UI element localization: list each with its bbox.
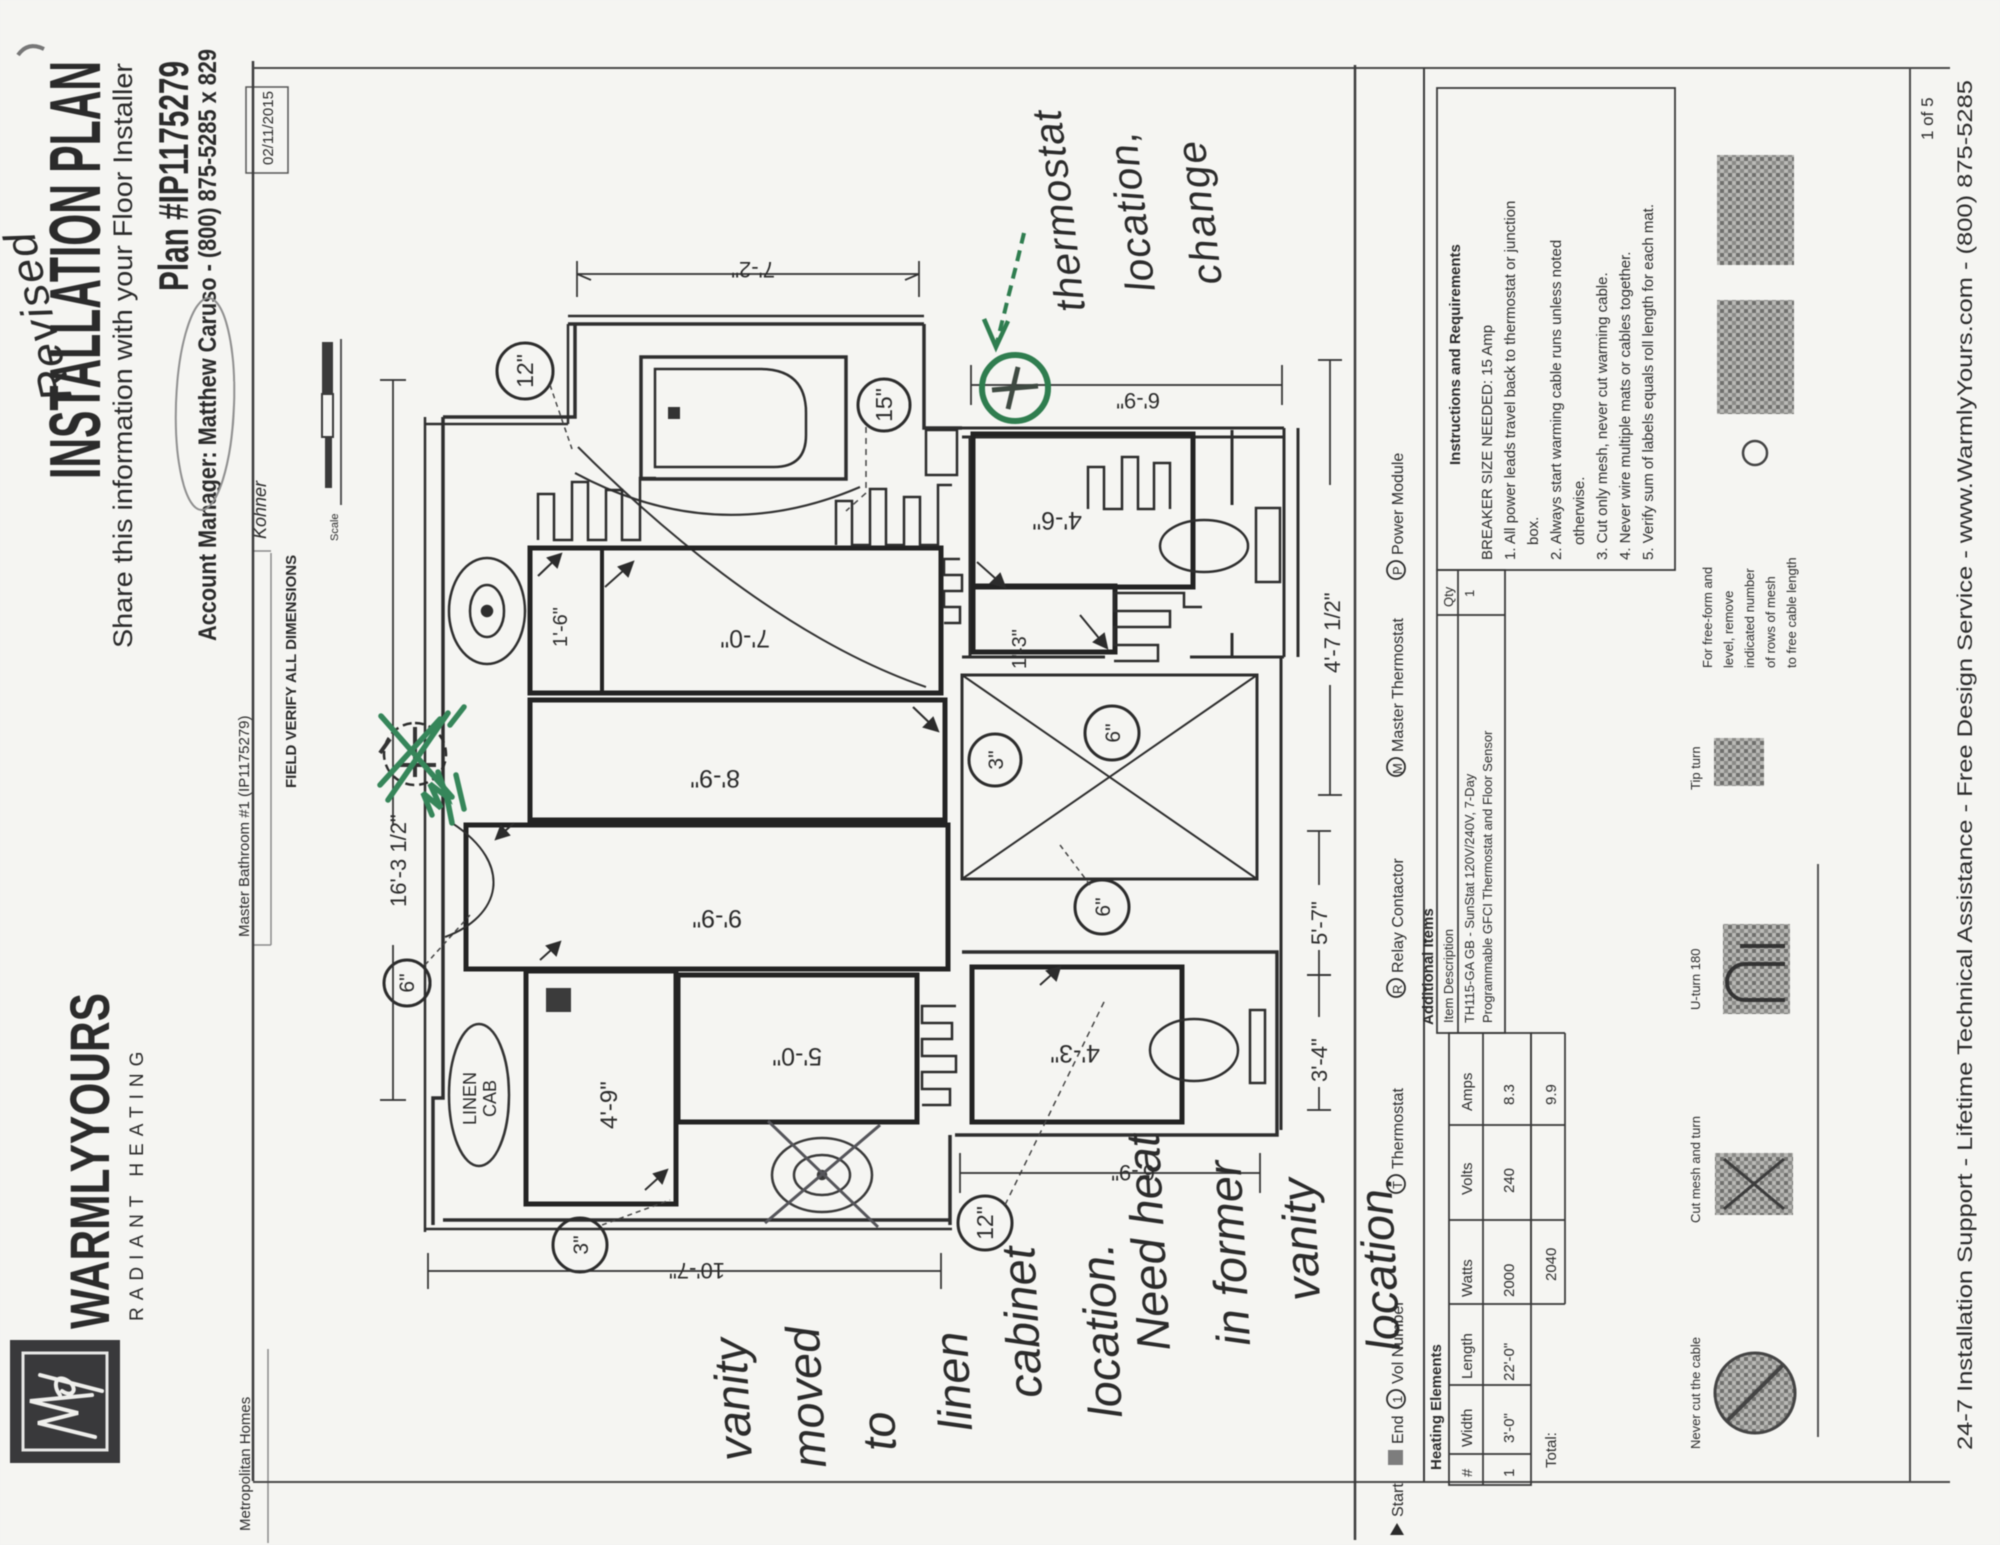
svg-text:vanity: vanity — [703, 1334, 762, 1462]
svg-text:6": 6" — [1092, 897, 1115, 916]
svg-text:7'-2": 7'-2" — [731, 257, 775, 282]
svg-text:9.9: 9.9 — [1543, 1084, 1560, 1105]
svg-text:3'-4": 3'-4" — [1307, 1038, 1332, 1082]
svg-text:to: to — [851, 1410, 906, 1452]
svg-text:Volts: Volts — [1459, 1162, 1476, 1195]
svg-text:Additional Items: Additional Items — [1420, 908, 1437, 1025]
svg-text:Width: Width — [1459, 1409, 1476, 1447]
svg-text:BREAKER SIZE NEEDED: 15 Amp: BREAKER SIZE NEEDED: 15 Amp — [1479, 325, 1496, 560]
svg-text:Item Description: Item Description — [1441, 929, 1456, 1023]
svg-text:WARMLYYOURS: WARMLYYOURS — [58, 993, 121, 1329]
svg-text:16'-3 1/2": 16'-3 1/2" — [386, 814, 411, 907]
svg-text:Heating Elements: Heating Elements — [1428, 1344, 1445, 1470]
svg-text:15": 15" — [871, 388, 897, 422]
svg-text:cabinet: cabinet — [991, 1243, 1052, 1399]
svg-text:Scale: Scale — [329, 513, 341, 541]
svg-text:vanity: vanity — [1271, 1174, 1330, 1302]
svg-text:otherwise.: otherwise. — [1571, 477, 1588, 545]
svg-text:5'-7": 5'-7" — [1307, 901, 1332, 945]
svg-text:6": 6" — [1102, 723, 1125, 742]
svg-text:Vol Number: Vol Number — [1390, 1300, 1407, 1384]
svg-text:linen: linen — [924, 1330, 982, 1432]
svg-text:Total:: Total: — [1543, 1432, 1560, 1468]
svg-text:Tip turn: Tip turn — [1688, 746, 1703, 790]
svg-text:8.3: 8.3 — [1501, 1084, 1518, 1105]
svg-text:Plan #IP1175279: Plan #IP1175279 — [150, 61, 197, 291]
svg-text:5'-0": 5'-0" — [772, 1042, 822, 1070]
svg-text:Watts: Watts — [1459, 1259, 1476, 1297]
svg-text:1: 1 — [1390, 1396, 1405, 1403]
svg-text:2. Always start warming cable: 2. Always start warming cable runs unles… — [1548, 240, 1565, 560]
svg-text:End: End — [1390, 1416, 1407, 1444]
svg-text:Instructions and Requirements: Instructions and Requirements — [1447, 244, 1464, 465]
svg-text:2000: 2000 — [1501, 1264, 1518, 1297]
svg-text:Never cut the cable: Never cut the cable — [1688, 1337, 1703, 1449]
svg-text:to free cable length: to free cable length — [1784, 557, 1799, 668]
svg-text:4'-9": 4'-9" — [596, 1081, 623, 1129]
svg-text:moved: moved — [776, 1324, 836, 1470]
svg-text:3": 3" — [570, 1235, 593, 1254]
svg-text:Master Thermostat: Master Thermostat — [1390, 617, 1407, 752]
svg-text:9'-9": 9'-9" — [692, 904, 742, 932]
svg-text:2040: 2040 — [1543, 1248, 1560, 1281]
svg-text:3": 3" — [985, 750, 1008, 769]
svg-text:Relay Contactor: Relay Contactor — [1390, 858, 1407, 973]
svg-text:LINEN: LINEN — [460, 1072, 480, 1125]
svg-text:4. Never wire multiple mats or: 4. Never wire multiple mats or cables to… — [1617, 252, 1634, 560]
svg-text:Cut mesh and turn: Cut mesh and turn — [1688, 1116, 1703, 1223]
svg-text:7'-0": 7'-0" — [720, 624, 770, 652]
svg-text:Start: Start — [1390, 1483, 1407, 1517]
svg-text:Amps: Amps — [1459, 1073, 1476, 1111]
svg-text:24-7 Installation Support - Li: 24-7 Installation Support - Lifetime Tec… — [1954, 80, 1977, 1450]
svg-text:22'-0": 22'-0" — [1501, 1343, 1518, 1381]
svg-text:Account Manager: Matthew Carus: Account Manager: Matthew Caruso - (800) … — [194, 49, 222, 641]
svg-text:T: T — [1390, 1181, 1405, 1189]
svg-text:INSTALLATION PLAN: INSTALLATION PLAN — [36, 61, 116, 479]
svg-text:Programmable GFCI Thermostat a: Programmable GFCI Thermostat and Floor S… — [1480, 730, 1495, 1023]
svg-text:R: R — [1390, 985, 1405, 994]
svg-text:10'-7": 10'-7" — [669, 1258, 725, 1283]
svg-text:Thermostat: Thermostat — [1390, 1088, 1407, 1169]
svg-text:indicated number: indicated number — [1742, 568, 1757, 668]
svg-text:in former: in former — [1197, 1157, 1260, 1347]
svg-text:Share this information with yo: Share this information with your Floor I… — [108, 63, 138, 648]
svg-text:level, remove: level, remove — [1721, 591, 1736, 668]
svg-text:8'-9": 8'-9" — [690, 764, 740, 792]
svg-text:5. Verify sum of labels equals: 5. Verify sum of labels equals roll leng… — [1640, 204, 1657, 560]
svg-text:4'-7 1/2": 4'-7 1/2" — [1320, 592, 1345, 673]
svg-text:RADIANT HEATING: RADIANT HEATING — [127, 1045, 148, 1321]
svg-text:3. Cut only mesh, never cut wa: 3. Cut only mesh, never cut warming cabl… — [1594, 272, 1611, 560]
svg-text:6'-9": 6'-9" — [1116, 388, 1160, 413]
svg-text:of rows of mesh: of rows of mesh — [1763, 576, 1778, 668]
svg-text:1: 1 — [1462, 590, 1477, 597]
svg-text:FIELD VERIFY ALL DIMENSIONS: FIELD VERIFY ALL DIMENSIONS — [283, 555, 300, 788]
svg-text:12": 12" — [972, 1206, 998, 1240]
svg-text:TH115-GA GB - SunStat 120V/240: TH115-GA GB - SunStat 120V/240V, 7-Day — [1462, 773, 1477, 1023]
svg-text:#: # — [1459, 1468, 1476, 1477]
svg-text:1. All power leads travel back: 1. All power leads travel back to thermo… — [1502, 201, 1519, 560]
svg-text:1: 1 — [1501, 1469, 1518, 1477]
svg-text:box.: box. — [1525, 517, 1542, 545]
svg-text:Qty: Qty — [1441, 586, 1456, 607]
svg-text:Master Bathroom #1 (IP1175279): Master Bathroom #1 (IP1175279) — [236, 715, 253, 937]
svg-text:M: M — [1390, 763, 1405, 774]
svg-text:02/11/2015: 02/11/2015 — [260, 91, 277, 165]
svg-text:Power Module: Power Module — [1390, 453, 1407, 555]
svg-text:4'-6": 4'-6" — [1032, 506, 1082, 534]
svg-text:1'-6": 1'-6" — [550, 607, 572, 647]
svg-text:3'-0": 3'-0" — [1501, 1413, 1518, 1443]
svg-text:CAB: CAB — [480, 1080, 500, 1117]
svg-text:1'-3": 1'-3" — [1009, 629, 1031, 669]
svg-text:P: P — [1390, 566, 1405, 575]
svg-text:Length: Length — [1459, 1333, 1476, 1379]
svg-text:12": 12" — [512, 354, 538, 388]
svg-text:6": 6" — [396, 973, 419, 992]
svg-text:1 of 5: 1 of 5 — [1918, 97, 1937, 140]
svg-text:240: 240 — [1501, 1168, 1518, 1193]
svg-text:U-turn 180: U-turn 180 — [1688, 949, 1703, 1010]
svg-text:For free-form and: For free-form and — [1700, 567, 1715, 668]
svg-text:Metropolitan Homes: Metropolitan Homes — [237, 1397, 254, 1531]
